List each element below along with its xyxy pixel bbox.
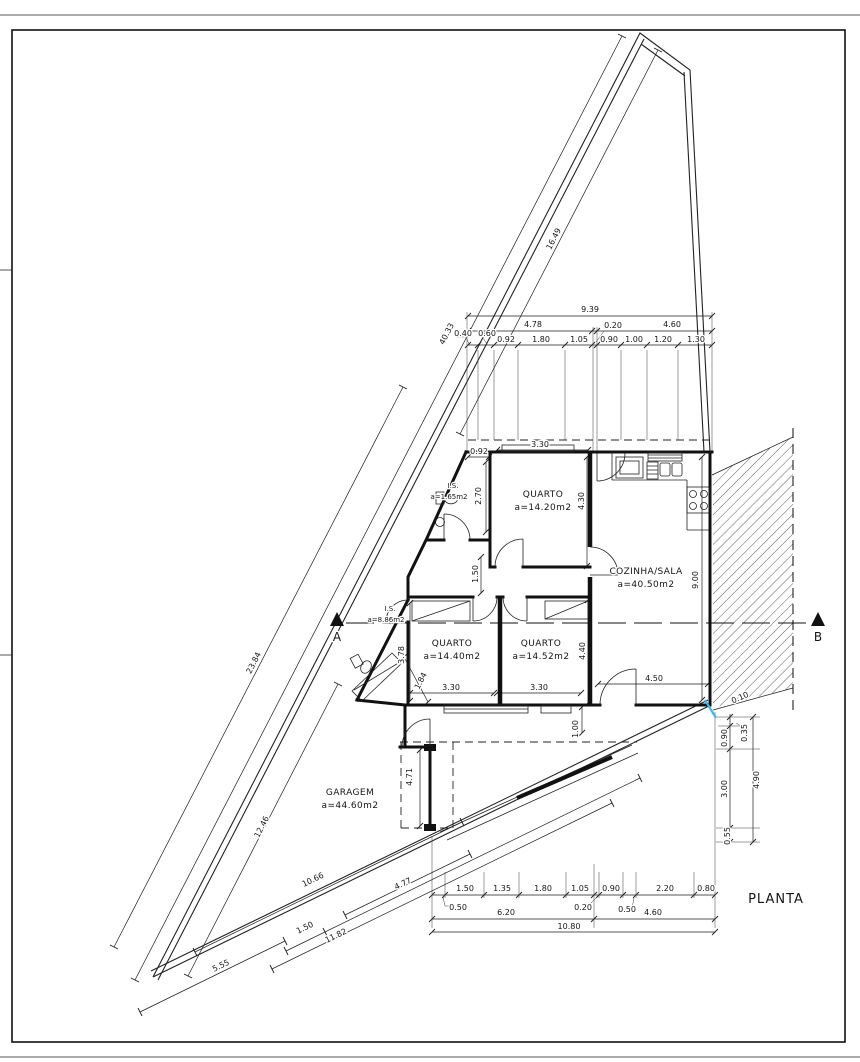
door-front xyxy=(600,669,636,705)
bottom-dimension-chain xyxy=(429,712,718,935)
hatch-fill xyxy=(713,437,793,708)
door-is-top xyxy=(444,514,470,540)
frame-fold-marks xyxy=(0,270,12,655)
dim-label: 0.35 xyxy=(740,724,749,742)
section-triangle-b xyxy=(811,612,825,626)
dim-label: 9.39 xyxy=(581,305,599,314)
drain-rack xyxy=(647,462,658,479)
dim-label: 1.00 xyxy=(571,720,580,738)
sink-basin-2 xyxy=(672,463,682,476)
dim-label: 2.70 xyxy=(474,487,483,505)
section-label-b: B xyxy=(814,630,822,644)
section-label-a: A xyxy=(333,630,342,644)
dim-label: 0.40 xyxy=(454,329,472,338)
dim-label: 1.80 xyxy=(534,884,552,893)
dim-label: 12.46 xyxy=(253,815,271,839)
sink-basin-1 xyxy=(660,463,670,476)
terrace-walkway xyxy=(440,745,638,840)
door-quarto-right xyxy=(503,597,527,621)
boundary-wall-section xyxy=(517,757,612,798)
room-name-label: QUARTO xyxy=(521,639,561,649)
room-area-label: a=14.20m2 xyxy=(515,503,572,513)
dim-label: 0.20 xyxy=(604,321,622,330)
dim-label: 4.90 xyxy=(752,771,761,789)
dim-label: 1.30 xyxy=(687,335,705,344)
leader-lines xyxy=(443,897,634,908)
room-area-label: a=44.60m2 xyxy=(322,801,379,811)
dim-label: 0.60 xyxy=(478,329,496,338)
labels-layer: QUARTOa=14.20m2QUARTOa=14.40m2QUARTOa=14… xyxy=(211,227,761,974)
dim-label: 1.05 xyxy=(570,335,588,344)
dim-label: 0.92 xyxy=(470,447,488,456)
dim-label: 0.92 xyxy=(497,335,515,344)
dim-label: 9.00 xyxy=(691,571,700,589)
door-quarto-left xyxy=(473,597,497,621)
room-name-label: I.S. xyxy=(385,605,396,613)
wardrobe-left-diag xyxy=(412,601,470,621)
kitchen-vent-stripes xyxy=(648,455,682,458)
dim-label: 11.82 xyxy=(324,927,349,945)
dim-label: 10.80 xyxy=(558,922,581,931)
room-area-label: a=40.50m2 xyxy=(618,580,675,590)
hatch-area xyxy=(712,428,793,712)
dim-label: 0.50 xyxy=(449,903,467,912)
lot-boundary-inner xyxy=(158,39,704,980)
dim-label: 3.30 xyxy=(442,683,460,692)
dim-label: 1.50 xyxy=(456,884,474,893)
dim-label: 23.84 xyxy=(245,651,263,675)
dim-label: 0.90 xyxy=(720,729,729,747)
room-name-label: GARAGEM xyxy=(326,788,374,798)
washbasin xyxy=(436,518,445,527)
dim-label: 0.50 xyxy=(618,905,636,914)
dim-label: 1.05 xyxy=(571,884,589,893)
burner xyxy=(690,491,697,498)
dim-label: 4.78 xyxy=(524,320,542,329)
dim-label: 0.55 xyxy=(723,827,732,845)
doors xyxy=(386,453,636,747)
dim-label: 4.50 xyxy=(645,674,663,683)
dim-label: 4.30 xyxy=(577,492,586,510)
wardrobe-right-diag xyxy=(545,601,588,619)
room-area-label: a=14.40m2 xyxy=(424,652,481,662)
drain-rack-stripes xyxy=(647,466,658,474)
burner xyxy=(701,503,708,510)
dim-label: 0.90 xyxy=(600,335,618,344)
room-area-label: a=8.86m2 xyxy=(367,616,404,624)
dim-label: 0.20 xyxy=(574,903,592,912)
dim-label: 4.60 xyxy=(663,320,681,329)
dim-label: 5.55 xyxy=(211,958,231,974)
dim-label: 3.00 xyxy=(720,780,729,798)
dim-label: 6.20 xyxy=(497,908,515,917)
kitchen-fixtures xyxy=(612,452,710,530)
dim-label: 1.84 xyxy=(413,671,429,691)
gate-post-bottom xyxy=(424,824,436,831)
dim-label: 3.30 xyxy=(531,440,549,449)
dim-label: 1.20 xyxy=(654,335,672,344)
dim-label: 4.40 xyxy=(578,642,587,660)
dim-label: 0.80 xyxy=(697,884,715,893)
dim-label: 4.71 xyxy=(405,768,414,786)
lot-boundary xyxy=(151,33,711,980)
dim-label: 0.90 xyxy=(602,884,620,893)
burner xyxy=(701,491,708,498)
dim-label: 3.78 xyxy=(397,646,406,664)
door-quarto-top xyxy=(495,539,523,567)
room-name-label: QUARTO xyxy=(432,639,472,649)
dim-label: 4.60 xyxy=(644,908,662,917)
drawing-title: PLANTA xyxy=(748,892,804,907)
dim-label: 16.49 xyxy=(545,227,563,251)
stove xyxy=(687,487,710,513)
dim-label: 4.77 xyxy=(393,876,413,892)
burner xyxy=(690,503,697,510)
room-area-label: a=1.65m2 xyxy=(430,493,467,501)
room-name-label: COZINHA/SALA xyxy=(609,567,683,577)
dim-label: 1.00 xyxy=(625,335,643,344)
dim-label: 1.35 xyxy=(493,884,511,893)
lot-boundary-outer xyxy=(153,33,710,977)
dim-label: 1.50 xyxy=(295,920,315,936)
dim-label: 2.20 xyxy=(656,884,674,893)
room-name-label: I.S. xyxy=(448,482,459,490)
room-name-label: QUARTO xyxy=(523,490,563,500)
floor-plan-drawing: A B PLANTA QUARTOa=14.20m2QUARTOa=14.40m… xyxy=(0,0,860,1062)
dim-label: 1.50 xyxy=(471,565,480,583)
dim-label: 10.66 xyxy=(301,871,326,889)
dim-label: 3.30 xyxy=(530,683,548,692)
section-triangle-a xyxy=(330,612,344,626)
dim-label: 1.80 xyxy=(532,335,550,344)
room-area-label: a=14.52m2 xyxy=(513,652,570,662)
drawing-sheet: A B PLANTA QUARTOa=14.20m2QUARTOa=14.40m… xyxy=(0,0,860,1062)
